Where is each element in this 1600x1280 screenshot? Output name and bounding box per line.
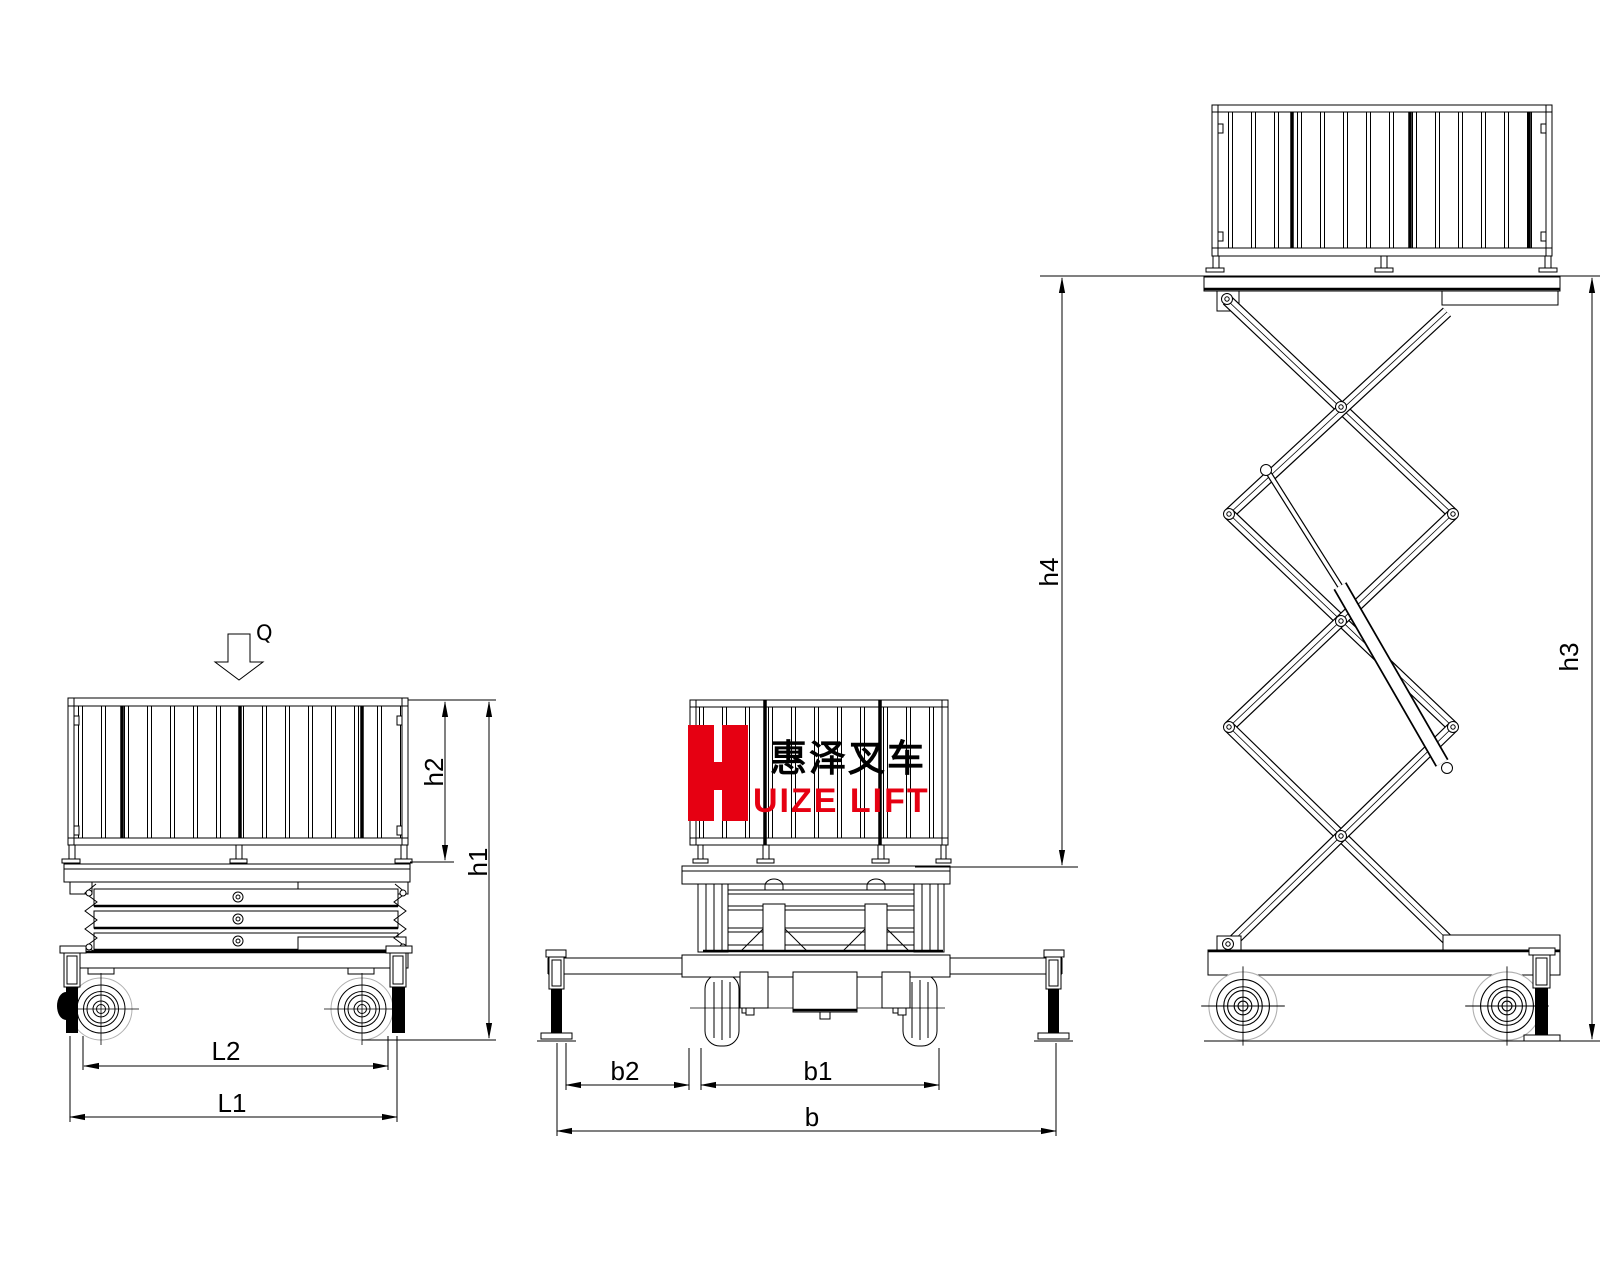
dim-label-b1: b1: [804, 1056, 833, 1086]
dim-label-b: b: [805, 1102, 819, 1132]
scissor-lift-technical-drawing: 惠泽叉车 UIZE LIFT: [0, 0, 1600, 1280]
platform-deck-front-view: [682, 866, 950, 884]
dim-label-h3: h3: [1554, 643, 1584, 672]
pivot-pin: [1223, 939, 1234, 950]
pivot-pin: [1336, 831, 1347, 842]
dim-label-b2: b2: [611, 1056, 640, 1086]
logo: 惠泽叉车 UIZE LIFT: [688, 725, 930, 821]
drawing-sheet: 惠泽叉车 UIZE LIFT: [0, 0, 1600, 1280]
pivot-pin: [1224, 509, 1235, 520]
dim-label-h1: h1: [463, 848, 493, 877]
dim-label-h2: h2: [419, 758, 449, 787]
wheel-front: [705, 974, 739, 1046]
chassis-front-view: [548, 955, 1062, 1019]
load-arrow-label: Q: [256, 621, 273, 645]
outrigger-jack: [537, 950, 576, 1041]
wheel: [1201, 966, 1285, 1045]
pivot-pin: [1222, 294, 1233, 305]
side-view-lowered: [57, 634, 496, 1122]
logo-latin-text: UIZE LIFT: [753, 782, 930, 820]
dim-label-L2: L2: [212, 1036, 241, 1066]
logo-chinese-text: 惠泽叉车: [770, 737, 926, 780]
folded-scissor-left-view: [70, 882, 408, 952]
scissor-mechanism: [1222, 294, 1459, 946]
platform-deck-left-view: [64, 864, 410, 882]
pivot-pin: [1448, 722, 1459, 733]
guardrail-raised-view: [1206, 105, 1557, 272]
dim-label-h4: h4: [1034, 558, 1064, 587]
pivot-pin: [1336, 402, 1347, 413]
wheel: [324, 973, 400, 1045]
pivot-pin: [1448, 509, 1459, 520]
pivot-pin: [1224, 722, 1235, 733]
folded-scissor-front-view: [698, 879, 944, 952]
dim-label-L1: L1: [218, 1088, 247, 1118]
chassis-left-view: [78, 952, 408, 974]
hydraulic-cylinder: [1261, 465, 1453, 774]
platform-deck-raised-view: [1204, 277, 1560, 311]
pivot-pin: [1336, 616, 1347, 627]
guardrail-left-view: [62, 698, 412, 863]
side-view-raised: [915, 105, 1600, 1046]
outrigger-jack: [1034, 950, 1073, 1041]
